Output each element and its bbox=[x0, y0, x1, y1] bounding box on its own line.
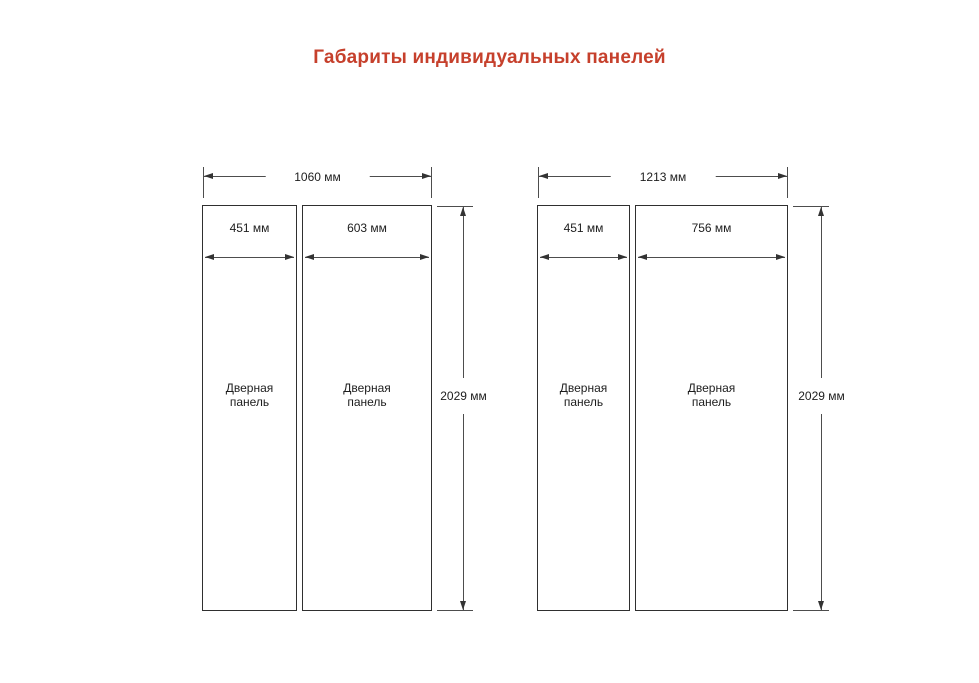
dimension-tick bbox=[437, 610, 473, 611]
total-width-dimension: 1060 мм bbox=[203, 167, 432, 198]
panel-width-arrow bbox=[305, 257, 429, 258]
door-panel: 756 мм Дверная панель bbox=[635, 205, 788, 611]
arrow-up-icon bbox=[460, 207, 466, 216]
arrow-down-icon bbox=[460, 601, 466, 610]
door-panel: 603 мм Дверная панель bbox=[302, 205, 432, 611]
panel-name-label: Дверная панель bbox=[682, 381, 742, 409]
total-width-dimension: 1213 мм bbox=[538, 167, 788, 198]
panel-name-label: Дверная панель bbox=[337, 381, 397, 409]
dimension-tick bbox=[437, 206, 473, 207]
arrow-right-icon bbox=[420, 254, 429, 260]
door-panel: 451 мм Дверная панель bbox=[202, 205, 297, 611]
diagram-canvas: Габариты индивидуальных панелей 1060 мм … bbox=[0, 0, 979, 683]
dimension-tick bbox=[787, 167, 788, 198]
height-dimension: 2029 мм bbox=[793, 206, 830, 611]
arrow-left-icon bbox=[205, 254, 214, 260]
dimension-tick bbox=[431, 167, 432, 198]
arrow-right-icon bbox=[285, 254, 294, 260]
total-width-label: 1060 мм bbox=[265, 168, 370, 186]
panel-name-label: Дверная панель bbox=[554, 381, 614, 409]
panel-name-label: Дверная панель bbox=[220, 381, 280, 409]
arrow-up-icon bbox=[818, 207, 824, 216]
panel-width-arrow bbox=[540, 257, 627, 258]
panel-width-label: 451 мм bbox=[203, 221, 296, 235]
dimension-tick bbox=[793, 610, 829, 611]
arrow-right-icon bbox=[618, 254, 627, 260]
height-label: 2029 мм bbox=[795, 378, 848, 414]
dimension-tick bbox=[538, 167, 539, 198]
panel-width-label: 756 мм bbox=[636, 221, 787, 235]
arrow-right-icon bbox=[422, 173, 431, 179]
arrow-right-icon bbox=[778, 173, 787, 179]
dimension-tick bbox=[203, 167, 204, 198]
height-dimension: 2029 мм bbox=[437, 206, 474, 611]
arrow-down-icon bbox=[818, 601, 824, 610]
arrow-left-icon bbox=[539, 173, 548, 179]
arrow-left-icon bbox=[305, 254, 314, 260]
panel-width-label: 603 мм bbox=[303, 221, 431, 235]
panel-width-label: 451 мм bbox=[538, 221, 629, 235]
total-width-label: 1213 мм bbox=[611, 168, 716, 186]
page-title: Габариты индивидуальных панелей bbox=[0, 47, 979, 69]
arrow-right-icon bbox=[776, 254, 785, 260]
door-panel: 451 мм Дверная панель bbox=[537, 205, 630, 611]
arrow-left-icon bbox=[638, 254, 647, 260]
arrow-left-icon bbox=[204, 173, 213, 179]
panel-width-arrow bbox=[205, 257, 294, 258]
arrow-left-icon bbox=[540, 254, 549, 260]
height-label: 2029 мм bbox=[437, 378, 490, 414]
panel-width-arrow bbox=[638, 257, 785, 258]
